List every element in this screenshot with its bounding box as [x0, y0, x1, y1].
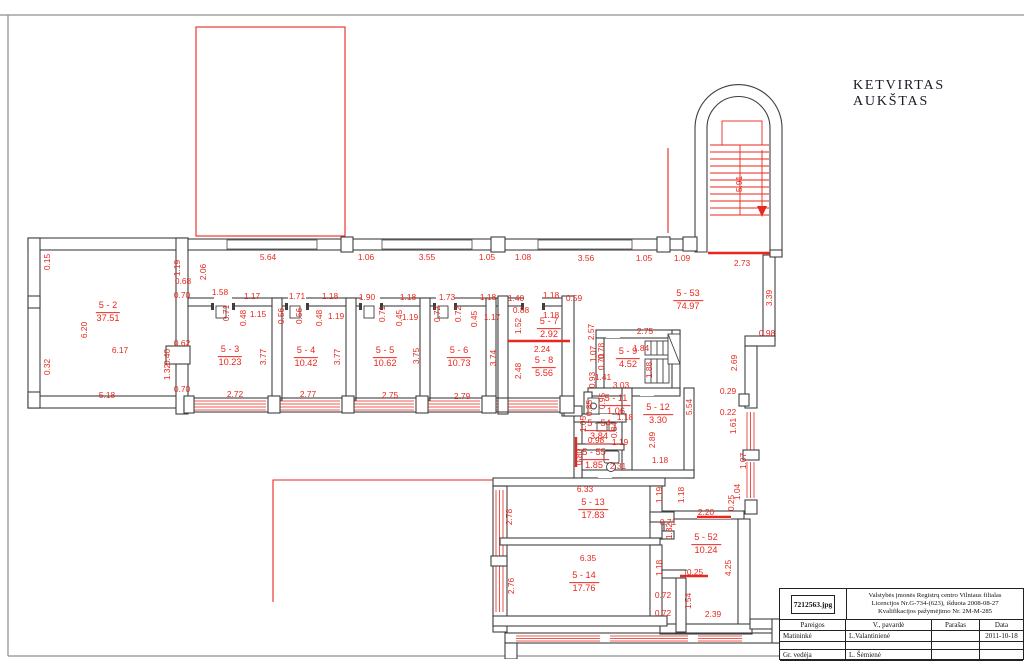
signature-table: PareigosV., pavardėParašasDataMatininkėL…: [780, 620, 1023, 661]
room-label-5-8: 5 - 85.56: [532, 355, 556, 379]
dimension-label: 1.05: [636, 254, 652, 262]
dimension-label: 2.72: [227, 390, 243, 398]
room-number: 5 - 52: [691, 532, 721, 545]
dimension-label: 1.19: [612, 438, 628, 446]
room-area: 4.52: [616, 359, 640, 370]
dimension-label: 0.56: [295, 308, 303, 324]
registry-info-line: Licencijos Nr.G-734-(623), išduota 2008-…: [847, 600, 1023, 608]
dimension-label: 0.15: [43, 254, 51, 270]
room-label-5-55: 5 - 551.85: [579, 447, 609, 471]
dimension-label: 2.78: [505, 509, 513, 525]
dimension-label: 1.18: [400, 293, 416, 301]
registry-info: Valstybės įmonės Registrų centro Vilniau…: [847, 589, 1023, 619]
dimension-label: 0.68: [175, 277, 191, 285]
dimension-label: 2.77: [300, 390, 316, 398]
dimension-label: 0.72: [433, 306, 441, 322]
dimension-label: 1.18: [322, 292, 338, 300]
room-label-5-12: 5 - 123.30: [643, 402, 673, 426]
dimension-label: 1.19: [328, 312, 344, 320]
room-number: 5 - 6: [447, 345, 471, 358]
room-number: 5 - 2: [96, 300, 120, 313]
dimension-label: 1.88: [645, 362, 653, 378]
dimension-label: 1.17: [484, 313, 500, 321]
room-label-5-52: 5 - 5210.24: [691, 532, 721, 556]
dimension-label: 0.72: [655, 591, 671, 599]
room-label-5-53: 5 - 5374.97: [673, 288, 703, 312]
dimension-label: 1.58: [212, 288, 228, 296]
dimension-label: 1.71: [289, 292, 305, 300]
room-area: 3.84: [584, 431, 614, 442]
room-label-5-9: 5 - 94.52: [616, 346, 640, 370]
dimension-label: 5.54: [685, 399, 693, 415]
dimension-label: 0.32: [43, 359, 51, 375]
dimension-label: 6.20: [80, 322, 88, 338]
room-area: 10.24: [691, 545, 721, 556]
dimension-label: 0.88: [513, 306, 529, 314]
room-number: 5 - 4: [294, 345, 318, 358]
dimension-label: 3.75: [412, 348, 420, 364]
dimension-label: 1.09: [674, 254, 690, 262]
room-number: 5 - 8: [532, 355, 556, 368]
dimension-label: 0.62: [174, 339, 190, 347]
dimension-label: 3.56: [578, 254, 594, 262]
dimension-label: 0.29: [720, 387, 736, 395]
room-area: 17.76: [569, 583, 599, 594]
signature-cell: L.Valantinienė: [846, 631, 932, 642]
dimension-label: 1.06: [358, 253, 374, 261]
room-label-5-3: 5 - 310.23: [218, 344, 242, 368]
registry-info-line: Valstybės įmonės Registrų centro Vilniau…: [847, 592, 1023, 600]
signature-cell: [980, 650, 1023, 661]
room-area: 74.97: [673, 301, 703, 312]
dimension-label: 1.15: [250, 310, 266, 318]
dimension-label: 1.32: [163, 364, 171, 380]
dimension-label: 2.75: [382, 391, 398, 399]
dimension-label: 0.22: [720, 408, 736, 416]
dimension-label: 1.52: [514, 318, 522, 334]
room-number: 5 - 9: [616, 346, 640, 359]
room-area: 1.85: [579, 460, 609, 471]
room-number: 5 - 5: [373, 345, 397, 358]
room-area: 2.92: [537, 329, 561, 340]
dimension-label: 2.06: [199, 264, 207, 280]
dimension-label: 5.91: [735, 176, 743, 192]
room-number: 5 - 54: [584, 418, 614, 431]
room-area: 10.62: [373, 358, 397, 369]
room-area: 37.51: [96, 313, 120, 324]
room-number: 5 - 11: [602, 393, 631, 406]
dimension-label: 0.40: [163, 349, 171, 365]
dimension-label: 1.05: [479, 253, 495, 261]
signature-cell: [780, 642, 846, 650]
dimension-label: 0.25: [687, 568, 703, 576]
dimension-label: 2.31: [610, 462, 626, 470]
dimension-label: 1.40: [508, 294, 524, 302]
dimension-label: 1.18: [677, 487, 685, 503]
room-number: 5 - 55: [579, 447, 609, 460]
registry-info-line: Kvalifikacijos pažymėjimo Nr. 2M-M-285: [847, 608, 1023, 616]
room-number: 5 - 3: [218, 344, 242, 357]
dimension-label: 6.17: [112, 346, 128, 354]
dimension-label: 0.70: [174, 291, 190, 299]
dimension-label: 1.61: [729, 418, 737, 434]
dimension-label: 1.73: [439, 293, 455, 301]
dimension-label: 2.75: [637, 327, 653, 335]
dimension-label: 1.32: [665, 523, 673, 539]
room-area: 3.30: [643, 415, 673, 426]
room-label-5-7: 5 - 72.92: [537, 316, 561, 340]
dimension-label: 0.85: [585, 400, 593, 416]
dimension-label: 0.48: [239, 310, 247, 326]
dimension-label: 0.48: [315, 310, 323, 326]
dimension-label: 1.18: [543, 291, 559, 299]
dimension-label: 6.35: [580, 554, 596, 562]
dimension-label: 1.18: [655, 560, 663, 576]
dimension-label: 2.76: [507, 578, 515, 594]
file-name-cell: 7212563.jpg: [780, 589, 847, 619]
dimension-label: 0.70: [597, 354, 605, 370]
title-block: 7212563.jpg Valstybės įmonės Registrų ce…: [779, 588, 1024, 660]
dimension-label: 4.25: [724, 560, 732, 576]
room-label-5-4: 5 - 410.42: [294, 345, 318, 369]
scanned-floorplan-page: { "page": { "title": "KETVIRTAS AUKŠTAS"…: [0, 0, 1024, 659]
dimension-label: 0.70: [174, 385, 190, 393]
dimension-label: 1.54: [684, 593, 692, 609]
room-label-5-13: 5 - 1317.83: [578, 497, 608, 521]
signature-cell: Gr. vedėja: [780, 650, 846, 661]
dimension-label: 2.24: [534, 345, 550, 353]
dimension-label: 0.25: [727, 495, 735, 511]
room-label-5-2: 5 - 237.51: [96, 300, 120, 324]
signature-col-header: Parašas: [932, 620, 980, 631]
room-area: 17.83: [578, 510, 608, 521]
room-number: 5 - 7: [537, 316, 561, 329]
signature-col-header: V., pavardė: [846, 620, 932, 631]
signature-cell: [932, 650, 980, 661]
floor-title: KETVIRTAS AUKŠTAS: [853, 78, 1024, 110]
dimension-label: 1.41: [595, 373, 611, 381]
room-area: 5.56: [532, 368, 556, 379]
room-label-5-54: 5 - 543.84: [584, 418, 614, 442]
signature-cell: L. Šėmienė: [846, 650, 932, 661]
room-area: 10.23: [218, 357, 242, 368]
signature-col-header: Pareigos: [780, 620, 846, 631]
dimension-label: 3.03: [613, 381, 629, 389]
dimension-label: 5.64: [260, 253, 276, 261]
room-number: 5 - 53: [673, 288, 703, 301]
dimension-label: 2.48: [514, 363, 522, 379]
room-label-5-6: 5 - 610.73: [447, 345, 471, 369]
dimension-label: 3.77: [259, 349, 267, 365]
room-area: 10.73: [447, 358, 471, 369]
dimension-label: 1.19: [173, 260, 181, 276]
room-number: 5 - 14: [569, 570, 599, 583]
dimension-label: 2.20: [698, 508, 714, 516]
dimension-label: 2.57: [587, 324, 595, 340]
dimension-label: 0.71: [222, 305, 230, 321]
signature-cell: 2011-10-18: [980, 631, 1023, 642]
dimension-label: 2.39: [705, 610, 721, 618]
dimension-label: 3.55: [419, 253, 435, 261]
room-number: 5 - 13: [578, 497, 608, 510]
dimension-label: 1.19: [655, 487, 663, 503]
room-number: 5 - 12: [643, 402, 673, 415]
dimension-label: 0.56: [277, 308, 285, 324]
room-label-5-14: 5 - 1417.76: [569, 570, 599, 594]
room-area: 10.42: [294, 358, 318, 369]
room-label-5-11: 5 - 111.06: [602, 393, 631, 417]
dimension-label: 1.19: [402, 313, 418, 321]
dimension-label: 0.71: [378, 306, 386, 322]
signature-cell: [980, 642, 1023, 650]
dimension-label: 3.39: [765, 290, 773, 306]
signature-cell: [932, 642, 980, 650]
title-block-top-row: 7212563.jpg Valstybės įmonės Registrų ce…: [780, 589, 1023, 620]
dimension-label: 0.45: [470, 311, 478, 327]
signature-cell: [846, 642, 932, 650]
room-label-5-5: 5 - 510.62: [373, 345, 397, 369]
dimension-label: 1.17: [244, 292, 260, 300]
dimension-label: 0.98: [759, 329, 775, 337]
dimension-label: 2.89: [648, 432, 656, 448]
signature-cell: Matininkė: [780, 631, 846, 642]
dimension-label: 0.72: [454, 306, 462, 322]
dimension-label: 0.59: [566, 294, 582, 302]
dimension-label: 1.18: [480, 293, 496, 301]
signature-col-header: Data: [980, 620, 1023, 631]
dimension-label: 1.90: [359, 293, 375, 301]
dimension-label: 1.07: [739, 453, 747, 469]
room-area: 1.06: [602, 406, 631, 417]
dimension-label: 2.79: [454, 392, 470, 400]
file-name-label: 7212563.jpg: [791, 595, 836, 614]
dimension-label: 6.33: [577, 485, 593, 493]
dimension-label: 1.08: [515, 253, 531, 261]
dimension-label: 0.93: [588, 372, 596, 388]
dimension-label: 2.69: [730, 355, 738, 371]
dimension-label: 5.18: [99, 391, 115, 399]
dimension-label: 2.73: [734, 259, 750, 267]
dimension-label: 1.18: [652, 456, 668, 464]
dimension-label: 3.77: [333, 349, 341, 365]
dimension-label: 3.74: [489, 350, 497, 366]
dimension-label: 0.72: [655, 609, 671, 617]
signature-cell: [932, 631, 980, 642]
